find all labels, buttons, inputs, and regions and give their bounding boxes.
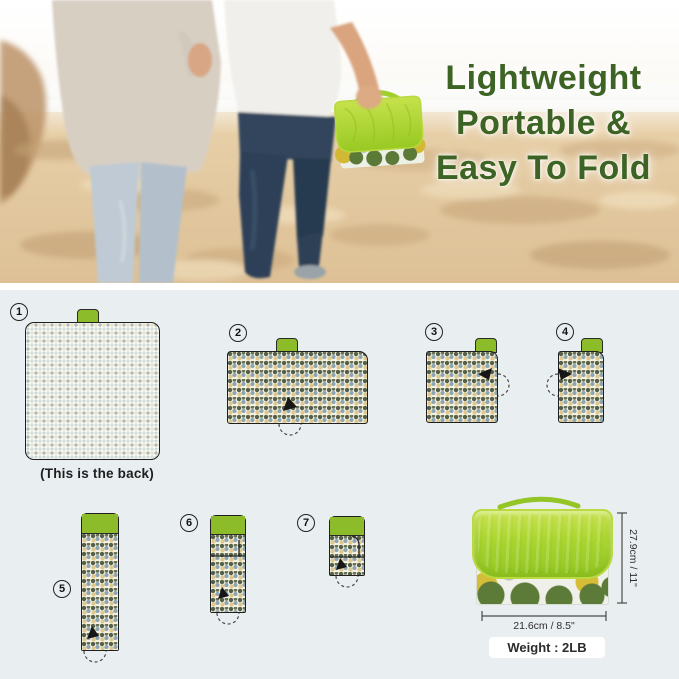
step-6-blanket [210,515,246,613]
step-6-pattern [211,535,245,612]
fold-arc-step-4 [547,374,558,396]
fold-arc-step-5 [84,651,106,662]
beach-photo: Lightweight Portable & Easy To Fold [0,0,679,283]
step-4-blanket [558,351,604,423]
hero-title-line-3: Easy To Fold [408,146,679,191]
joined-hands [188,43,212,77]
step-2-badge: 2 [229,324,247,342]
weight-badge: Weight : 2LB [489,637,605,658]
step-5-pattern [82,534,118,650]
step-7-pattern [330,536,364,575]
height-dimension-label: 27.9cm / 11" [627,529,639,587]
step-6-green-top [211,516,245,535]
hero-title: Lightweight Portable & Easy To Fold [408,56,679,191]
step-7-badge: 7 [297,514,315,532]
step-1-blanket [25,322,160,460]
step-5-green-top [82,514,118,534]
folding-steps-diagram: 1 (This is the back) 2 3 4 5 6 7 [0,290,679,679]
step-7-blanket [329,516,365,576]
step-3-blanket [426,351,498,423]
fold-arc-step-6 [217,613,239,624]
step-1-caption: (This is the back) [8,466,186,481]
step-1-badge: 1 [10,303,28,321]
fold-arc-step-3 [498,374,509,396]
section-divider [0,283,679,290]
product-bag-flap [472,509,613,579]
step-5-badge: 5 [53,580,71,598]
step-2-blanket [227,351,368,424]
hero-title-line-1: Lightweight [408,56,679,101]
product-bag-handle [500,499,578,507]
hero-title-line-2: Portable & [408,101,679,146]
step-6-badge: 6 [180,514,198,532]
fold-arc-step-7 [336,576,358,587]
step-7-green-top [330,517,364,536]
step-5-blanket [81,513,119,651]
step-4-badge: 4 [556,323,574,341]
product-infographic: Lightweight Portable & Easy To Fold 1 (T… [0,0,679,679]
width-dimension-label: 21.6cm / 8.5" [482,620,606,632]
fold-arc-step-2 [279,424,301,435]
step-3-badge: 3 [425,323,443,341]
